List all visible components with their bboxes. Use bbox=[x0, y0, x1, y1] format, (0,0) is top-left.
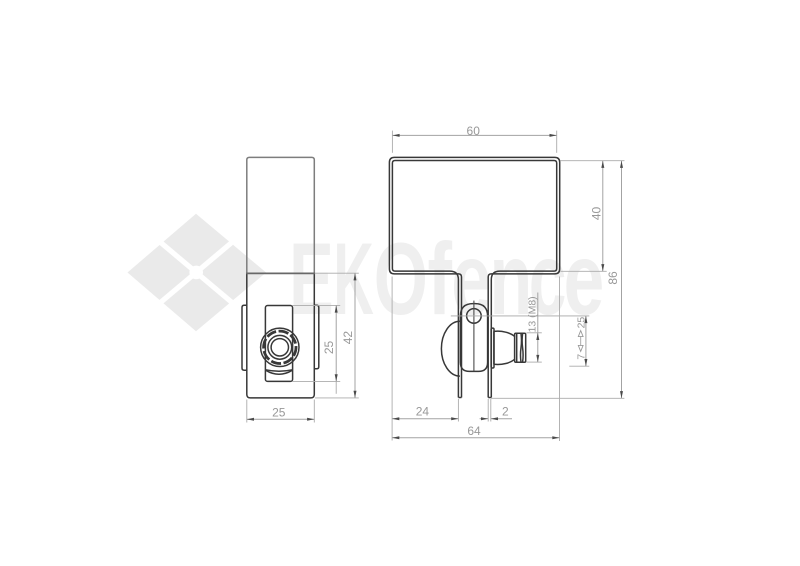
svg-text:O: O bbox=[374, 222, 428, 336]
svg-text:40: 40 bbox=[590, 207, 604, 221]
svg-text:60: 60 bbox=[467, 124, 481, 138]
svg-text:24: 24 bbox=[416, 405, 430, 419]
svg-text:42: 42 bbox=[341, 331, 355, 345]
svg-text:7: 7 bbox=[575, 354, 587, 360]
svg-text:2: 2 bbox=[502, 405, 509, 419]
svg-text:E: E bbox=[289, 223, 334, 336]
svg-text:e: e bbox=[451, 222, 492, 336]
svg-text:25: 25 bbox=[322, 341, 336, 355]
svg-text:25: 25 bbox=[272, 405, 286, 419]
svg-text:13 (M8): 13 (M8) bbox=[526, 296, 538, 332]
svg-text:86: 86 bbox=[606, 271, 620, 285]
svg-text:K: K bbox=[333, 224, 373, 337]
svg-text:64: 64 bbox=[467, 424, 481, 438]
svg-text:25: 25 bbox=[575, 317, 587, 329]
svg-text:f: f bbox=[428, 221, 453, 336]
